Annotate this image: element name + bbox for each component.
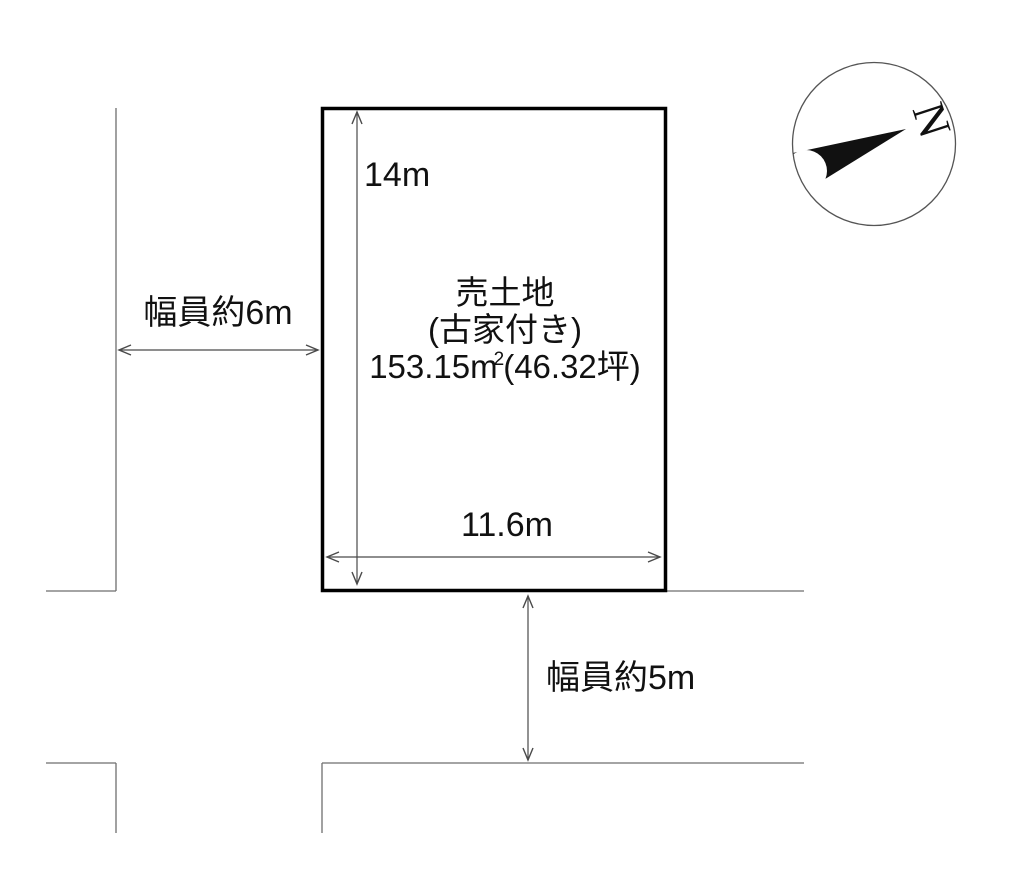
compass: N (785, 63, 961, 226)
plot-height-dimension-label: 14m (364, 158, 430, 194)
plot-area-sup: 2 (494, 341, 505, 378)
plot-width-dimension-label: 11.6m (427, 508, 587, 544)
plot-title: 売土地 (340, 274, 670, 311)
compass-needle-notch (785, 150, 827, 192)
site-plan-drawing: N (0, 0, 1024, 872)
plot-area: 153.15m2(46.32坪) (340, 348, 670, 385)
plot-description: 売土地 (古家付き) 153.15m2(46.32坪) (340, 274, 670, 385)
plot-subtitle: (古家付き) (340, 311, 670, 348)
plot-area-value: 153.15m (369, 348, 497, 385)
plot-area-tsubo: (46.32坪) (503, 348, 641, 385)
compass-north-label: N (903, 96, 962, 143)
site-plan-canvas: N 14m 11.6m 幅員約6m 幅員約5m 売土地 (古家付き) 153.1… (0, 0, 1024, 872)
road-bottom-width-label: 幅員約5m (546, 661, 695, 697)
road-left-width-label: 幅員約6m (118, 296, 318, 332)
